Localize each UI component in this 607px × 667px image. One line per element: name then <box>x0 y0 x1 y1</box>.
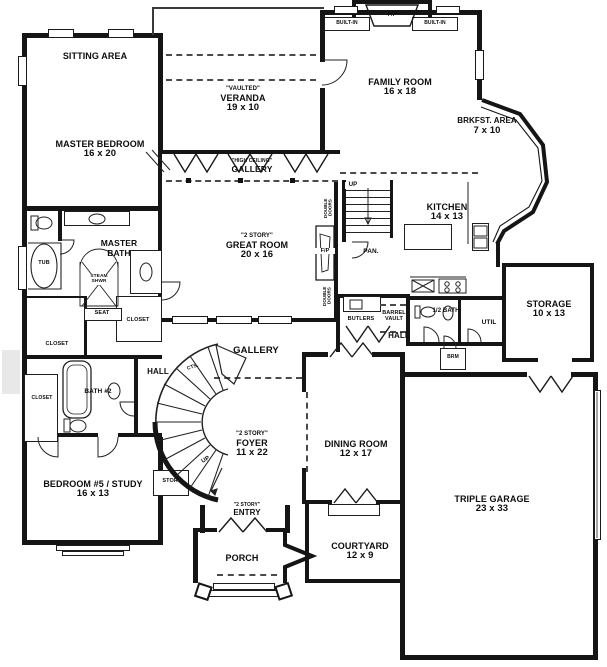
label-tub: TUB <box>32 260 56 266</box>
room-dims: 23 x 33 <box>432 504 552 515</box>
room-name: SITTING AREA <box>45 51 145 61</box>
label-steam-shwr: STEAM SHWR <box>85 274 113 285</box>
label-up-back-stairs: UP <box>345 182 361 189</box>
room-dims: 19 x 10 <box>203 103 283 114</box>
room-label-entry: "2 STORY" ENTRY <box>217 503 277 518</box>
room-label-courtyard: COURTYARD 12 x 9 <box>320 541 400 562</box>
room-dims: 12 x 17 <box>316 449 396 460</box>
label-double-doors-lower: DOUBLE DOORS <box>323 278 333 314</box>
label-bath2: BATH #2 <box>84 388 112 395</box>
label-closet-bath2: CLOSET <box>24 396 60 402</box>
room-dims: 7 x 10 <box>447 126 527 137</box>
label-closet-master-2: CLOSET <box>37 341 77 347</box>
label-fp-family: F/P <box>382 12 402 18</box>
room-dims: 10 x 13 <box>509 309 589 320</box>
room-label-kitchen: KITCHEN 14 x 13 <box>407 202 487 223</box>
room-name: GALLERY <box>216 346 296 357</box>
room-dims: 16 x 18 <box>350 87 450 98</box>
label-stor: STOR. <box>155 478 187 484</box>
room-label-bedroom5: BEDROOM #5 / STUDY 16 x 13 <box>32 479 154 500</box>
room-name: MASTER BATH <box>92 239 146 258</box>
room-qualifier: "VAULTED" <box>203 86 283 93</box>
room-label-family-room: FAMILY ROOM 16 x 18 <box>350 77 450 98</box>
room-label-foyer: "2 STORY" FOYER 11 x 22 <box>212 431 292 458</box>
label-built-in-left: BUILT-IN <box>325 21 369 27</box>
room-dims: 16 x 13 <box>32 489 154 500</box>
label-butlers: BUTLERS <box>339 316 383 322</box>
label-util: UTIL <box>473 319 505 326</box>
french-doors <box>174 154 573 532</box>
room-dims: 11 x 22 <box>212 448 292 459</box>
room-dims: 14 x 13 <box>407 212 487 223</box>
room-label-sitting-area: SITTING AREA <box>45 51 145 61</box>
room-dims: 12 x 9 <box>320 551 400 562</box>
label-hall-left: HALL <box>138 368 178 377</box>
label-brm: BRM <box>442 355 464 361</box>
room-name: GALLERY <box>207 165 297 175</box>
room-label-veranda: "VAULTED" VERANDA 19 x 10 <box>203 86 283 113</box>
label-double-doors-upper: DOUBLE DOORS <box>324 190 334 226</box>
room-label-dining-room: DINING ROOM 12 x 17 <box>316 439 396 460</box>
label-barrel-vault: BARREL VAULT <box>380 310 408 322</box>
room-label-triple-garage: TRIPLE GARAGE 23 x 33 <box>432 494 552 515</box>
room-label-master-bedroom: MASTER BEDROOM 16 x 20 <box>40 139 160 160</box>
room-label-gallery-lower: GALLERY <box>216 346 296 357</box>
floor-plan: SITTING AREA MASTER BEDROOM 16 x 20 "VAU… <box>0 0 607 667</box>
plan-detail-layer <box>0 0 607 667</box>
room-dims: 16 x 20 <box>40 149 160 160</box>
room-label-master-bath: MASTER BATH <box>92 239 146 258</box>
room-label-gallery-upper: "HIGH CEILING" GALLERY <box>207 159 297 174</box>
room-qualifier: "2 STORY" <box>207 233 307 240</box>
label-hall-right: HALL <box>379 332 419 341</box>
label-seat: SEAT <box>86 310 118 316</box>
label-fp-great: F/P <box>315 248 335 254</box>
room-label-porch: PORCH <box>212 553 272 563</box>
label-half-bath: 1/2 BATH <box>432 308 460 315</box>
porch-edge <box>195 531 312 600</box>
room-label-brkfst-area: BRKFST. AREA 7 x 10 <box>447 117 527 137</box>
label-closet-master-1: CLOSET <box>118 317 158 323</box>
room-label-storage: STORAGE 10 x 13 <box>509 299 589 320</box>
room-name: ENTRY <box>217 509 277 518</box>
room-name: PORCH <box>212 553 272 563</box>
room-qualifier: "2 STORY" <box>212 431 292 438</box>
room-dims: 20 x 16 <box>207 250 307 261</box>
room-label-great-room: "2 STORY" GREAT ROOM 20 x 16 <box>207 233 307 260</box>
label-built-in-right: BUILT-IN <box>413 21 457 27</box>
label-pantry: PAN. <box>357 248 385 255</box>
